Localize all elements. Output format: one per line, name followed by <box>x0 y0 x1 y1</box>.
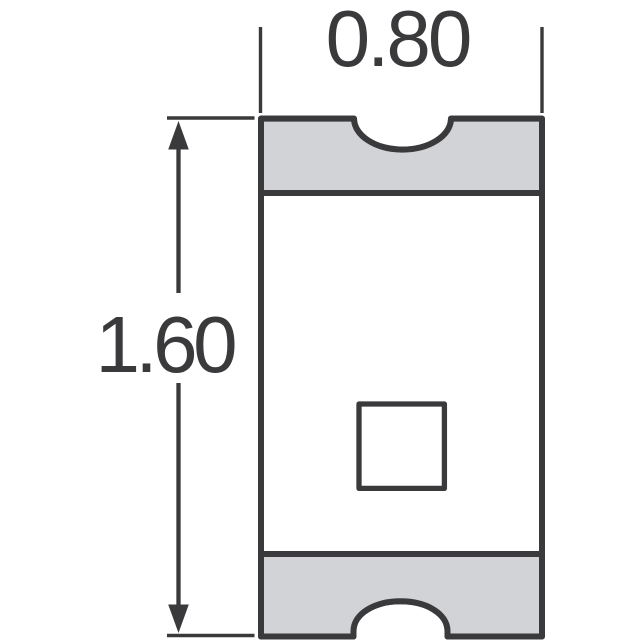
svg-text:1.60: 1.60 <box>95 300 235 389</box>
svg-text:0.80: 0.80 <box>326 0 470 83</box>
